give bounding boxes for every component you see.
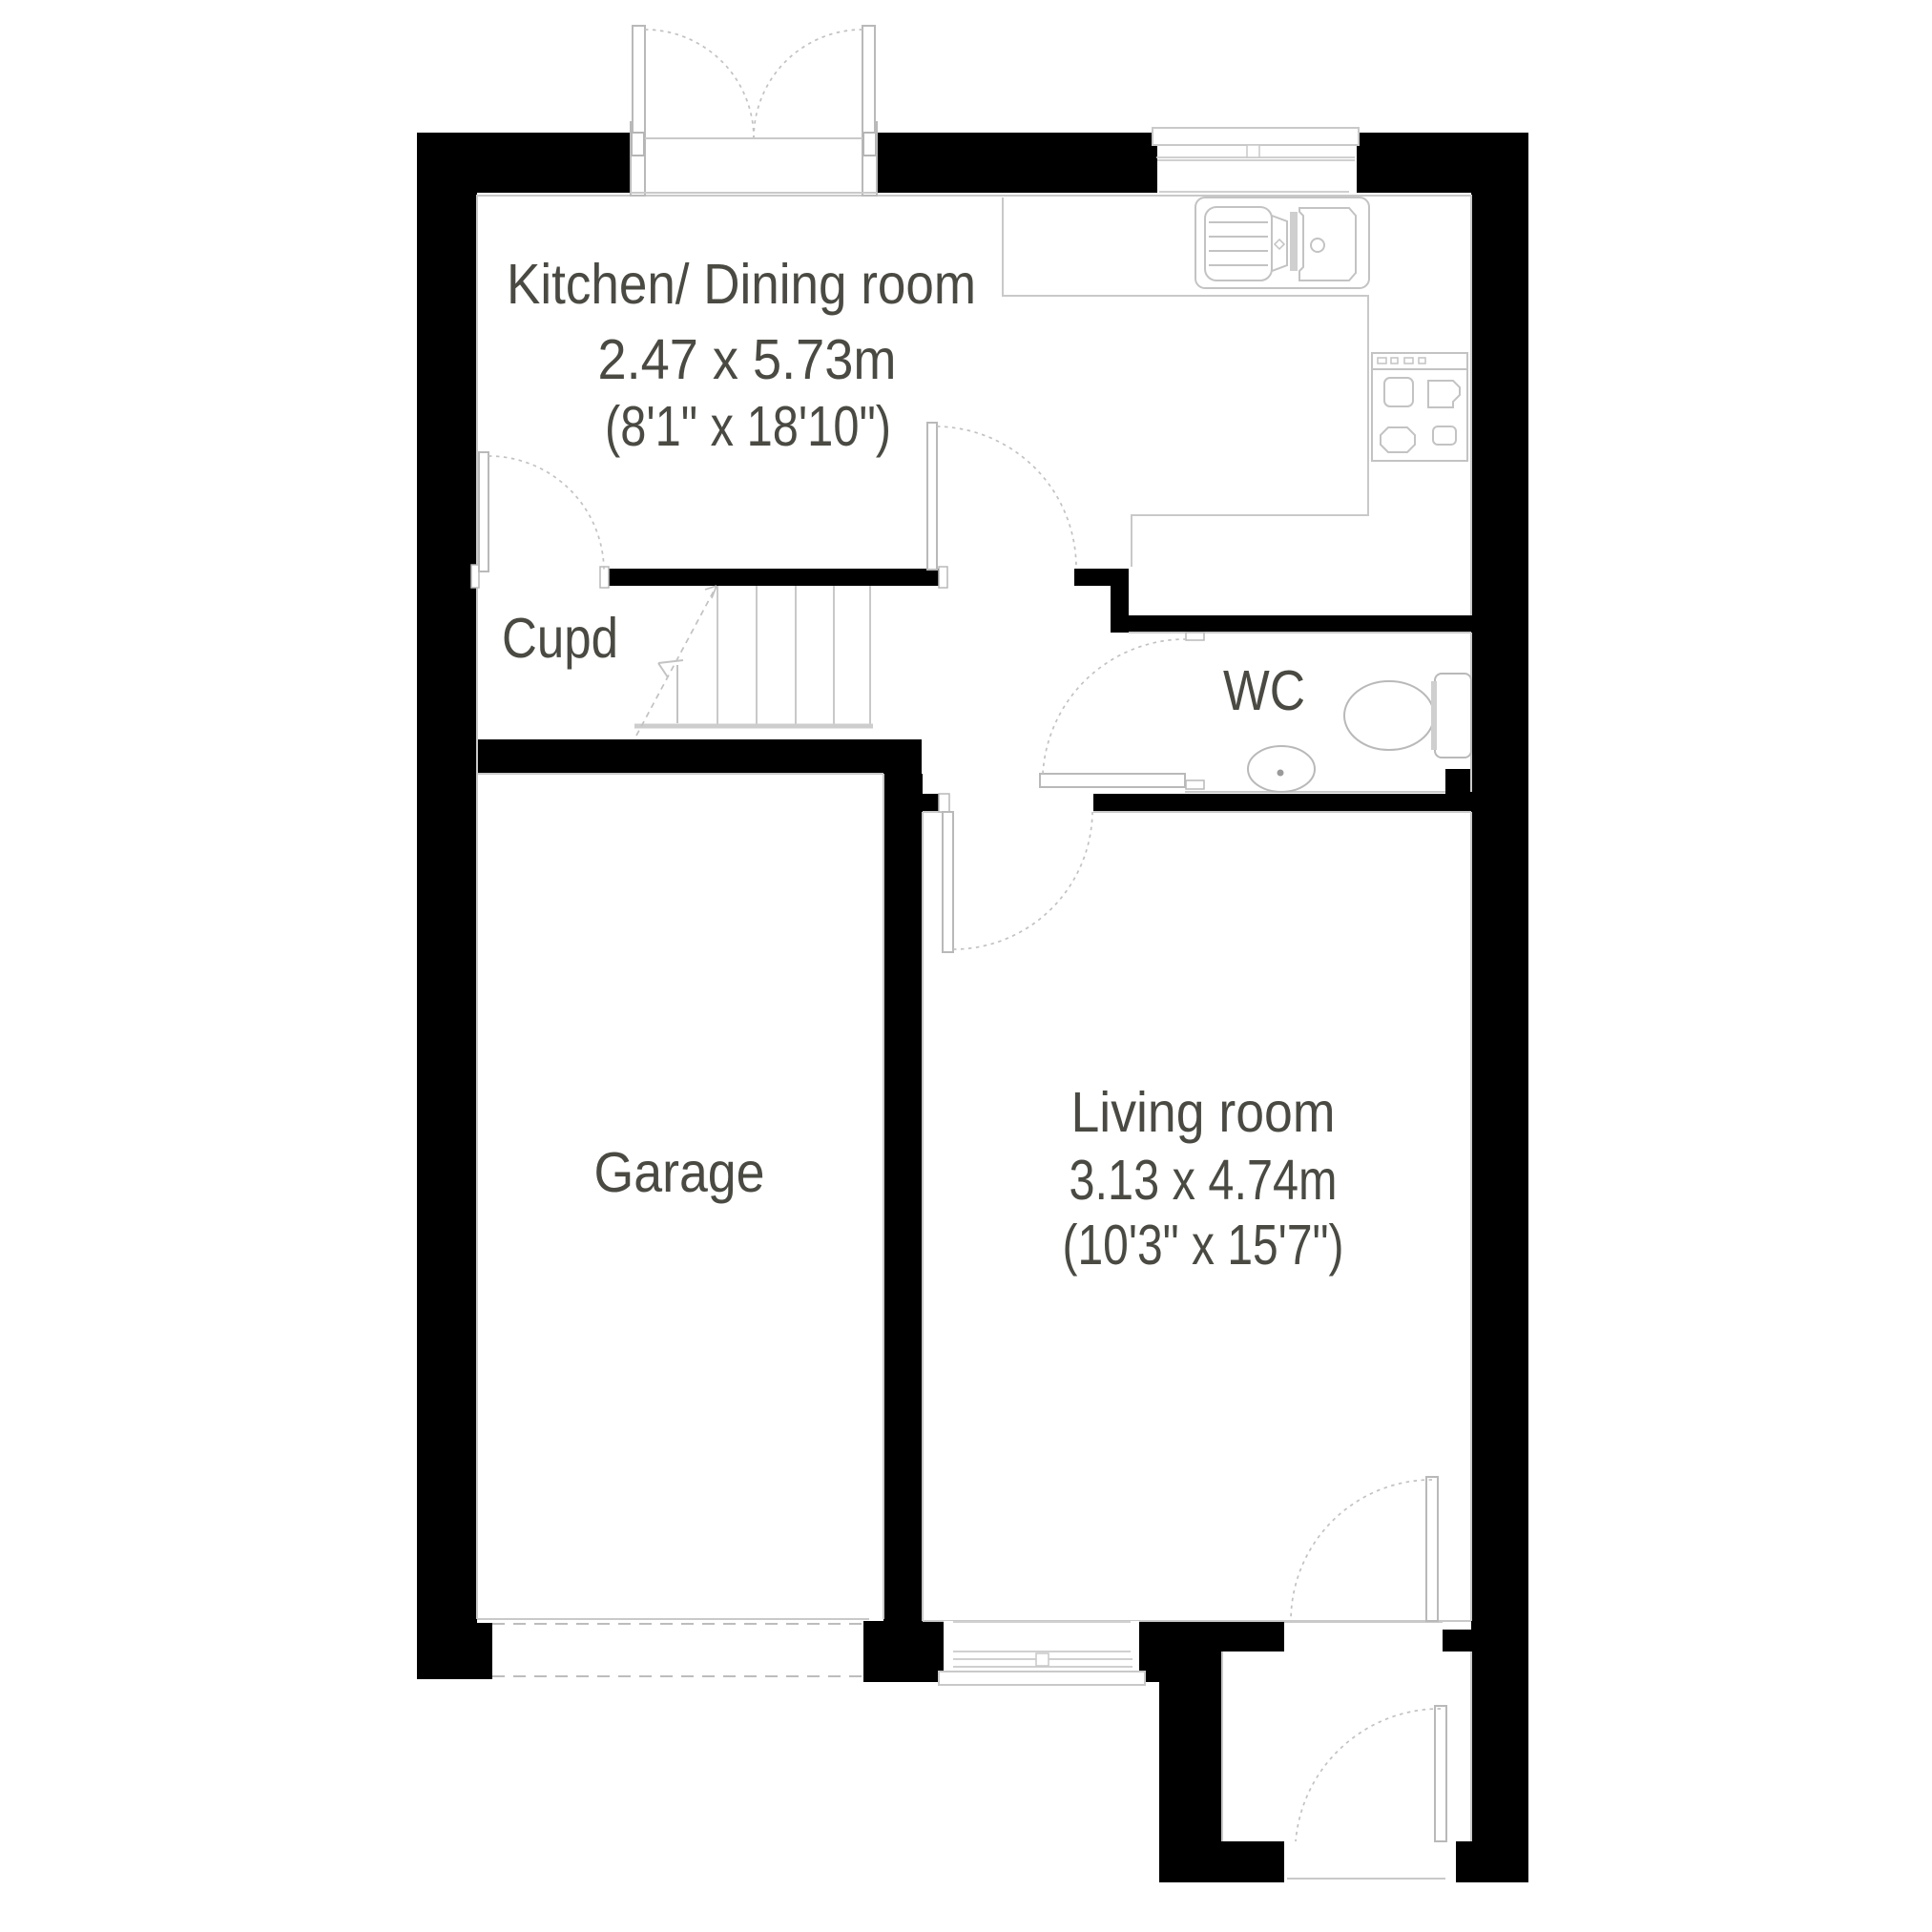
svg-text:3.13 x 4.74m: 3.13 x 4.74m bbox=[1070, 1149, 1338, 1212]
svg-text:(8'1" x 18'10"): (8'1" x 18'10") bbox=[605, 395, 891, 458]
svg-text:WC: WC bbox=[1223, 659, 1305, 722]
svg-text:(10'3" x 15'7"): (10'3" x 15'7") bbox=[1063, 1214, 1344, 1277]
svg-text:2.47 x 5.73m: 2.47 x 5.73m bbox=[598, 328, 897, 391]
svg-text:Garage: Garage bbox=[594, 1141, 765, 1204]
svg-text:Living room: Living room bbox=[1071, 1081, 1336, 1144]
svg-text:Kitchen/ Dining room: Kitchen/ Dining room bbox=[507, 253, 976, 316]
svg-text:Cupd: Cupd bbox=[502, 607, 618, 670]
